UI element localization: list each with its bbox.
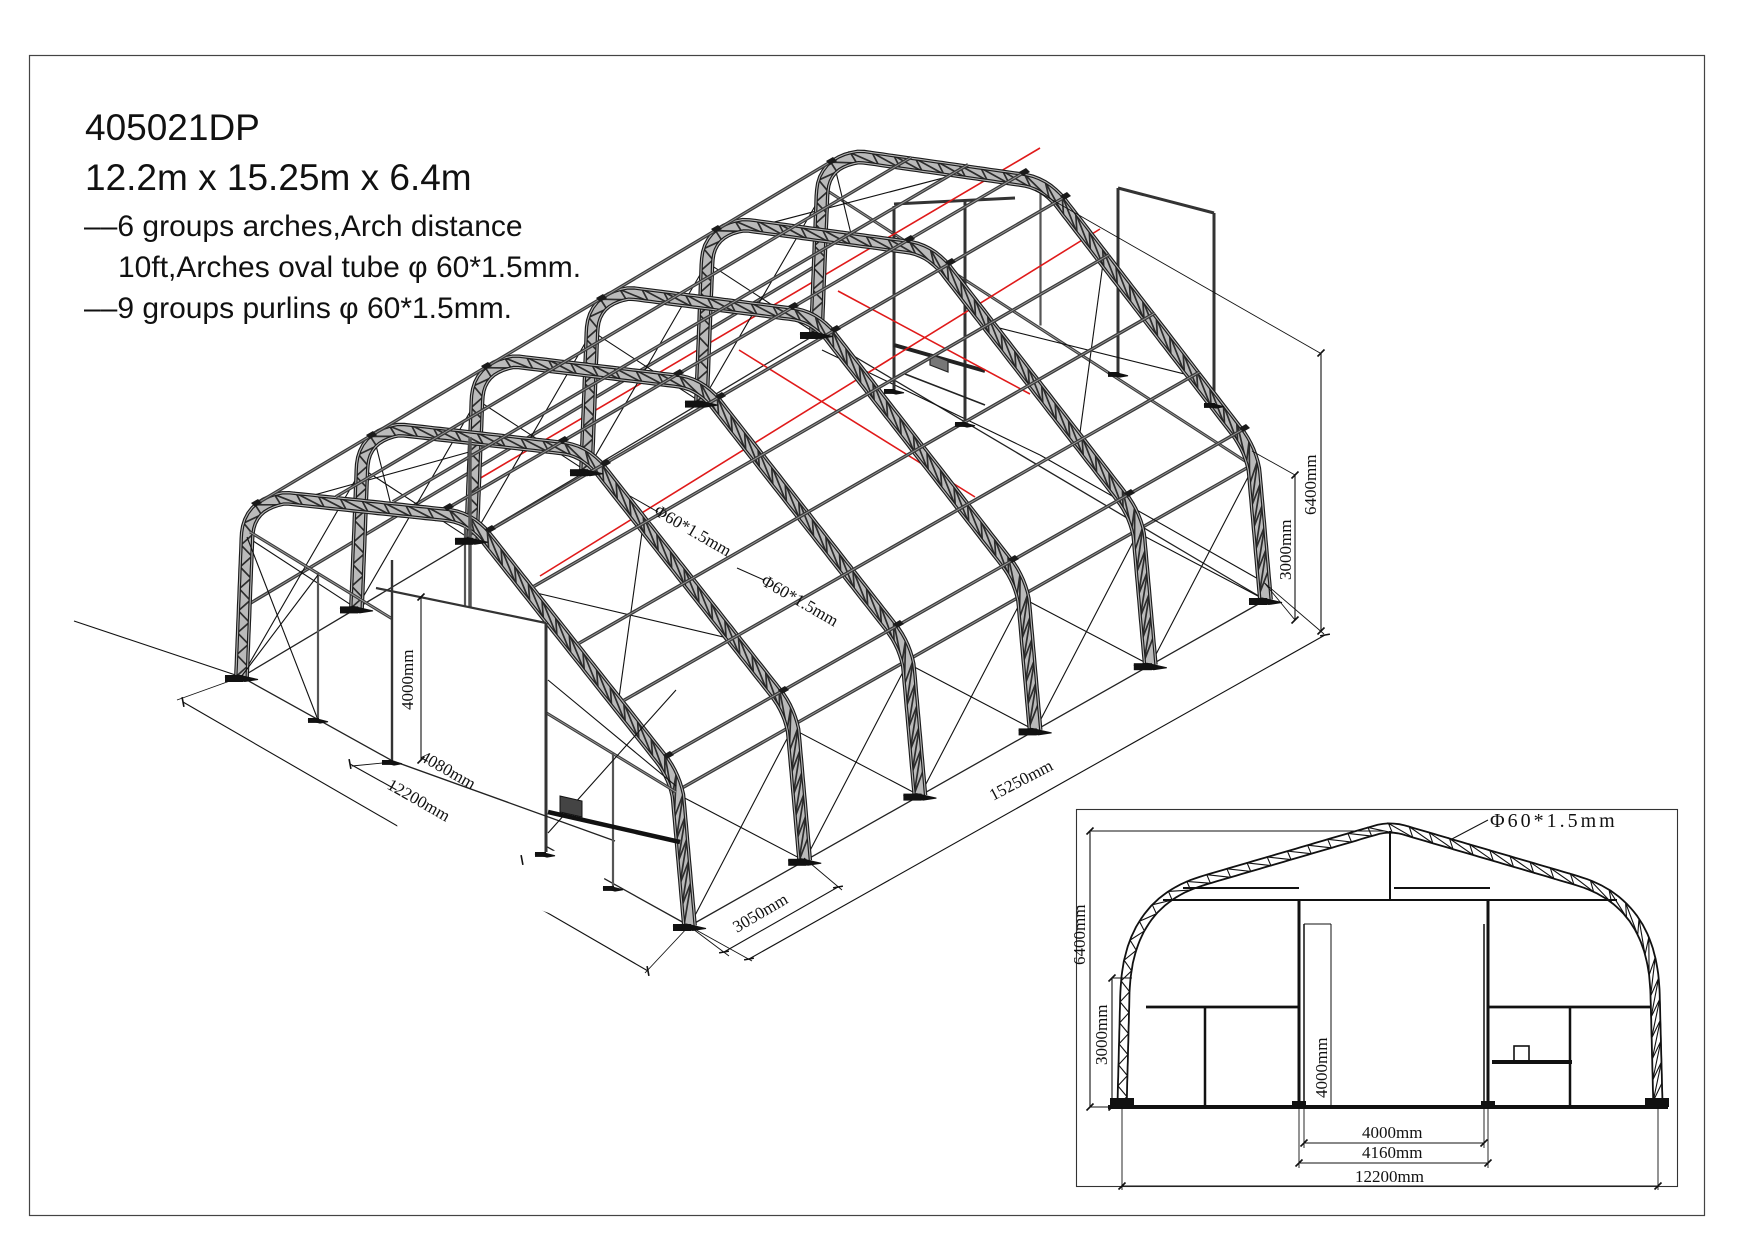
- svg-text:6400mm: 6400mm: [1301, 455, 1320, 515]
- svg-text:10ft,Arches oval tube φ 60*1.: 10ft,Arches oval tube φ 60*1.5mm.: [118, 251, 581, 284]
- svg-text:4000mm: 4000mm: [1362, 1123, 1422, 1142]
- svg-text:12.2m x 15.25m x 6.4m: 12.2m x 15.25m x 6.4m: [85, 157, 472, 198]
- svg-text:4000mm: 4000mm: [398, 650, 417, 710]
- svg-text:405021DP: 405021DP: [85, 107, 260, 148]
- svg-text:3000mm: 3000mm: [1276, 520, 1295, 580]
- svg-text:Φ60*1.5mm: Φ60*1.5mm: [1490, 810, 1618, 832]
- svg-text:12200mm: 12200mm: [1355, 1167, 1424, 1186]
- svg-text:3000mm: 3000mm: [1092, 1005, 1111, 1065]
- svg-text:4160mm: 4160mm: [1362, 1143, 1422, 1162]
- svg-text:4000mm: 4000mm: [1312, 1038, 1331, 1098]
- svg-text:––9 groups purlins φ 60*1.5mm: ––9 groups purlins φ 60*1.5mm.: [84, 292, 512, 325]
- svg-text:6400mm: 6400mm: [1070, 905, 1089, 965]
- svg-text:––6 groups arches,Arch distanc: ––6 groups arches,Arch distance: [84, 210, 523, 243]
